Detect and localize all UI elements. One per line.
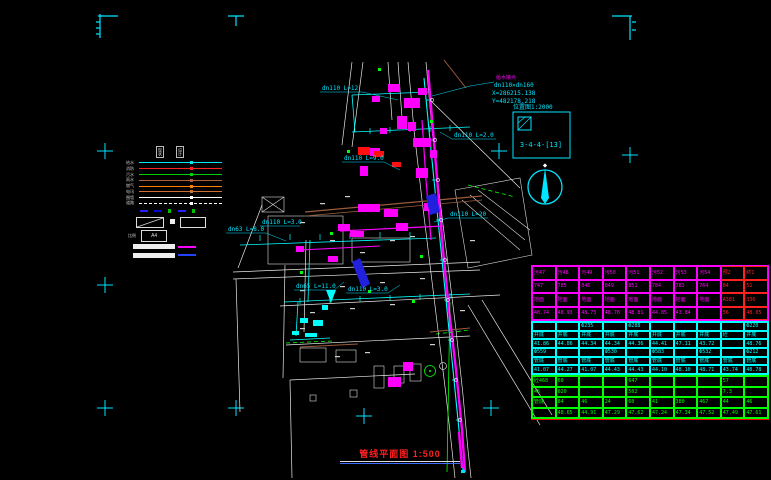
table-cell: 44.91	[579, 408, 603, 419]
legend-scalebar-1	[133, 244, 175, 249]
table-section: Ф235Ф288Ф220井底井底井底井底井底井底井底井底砼井底41.8644.0…	[531, 321, 769, 375]
table-cell: Ф235	[579, 322, 603, 331]
table-cell: 47.49	[721, 408, 745, 419]
table-cell: 46	[579, 397, 603, 408]
legend-symbols-row	[140, 208, 220, 214]
table-cell: 44.27	[556, 365, 580, 374]
table-cell: 46	[744, 397, 768, 408]
table-cell: 井底	[603, 331, 627, 340]
table-cell	[556, 322, 580, 331]
table-cell: 48.10	[674, 365, 698, 374]
table-cell	[697, 387, 721, 398]
table-cell: 井底	[626, 331, 650, 340]
table-cell: 地面	[556, 293, 580, 307]
legend-magenta-sample	[178, 246, 196, 248]
table-cell: 41.07	[579, 365, 603, 374]
legend-row-marker	[190, 179, 193, 182]
title-underline-blue	[340, 463, 460, 464]
connection-note-line4: Y=482178.218	[492, 98, 536, 105]
table-cell: 020	[556, 387, 580, 398]
legend-slope-symbol	[136, 217, 164, 228]
table-cell	[603, 387, 627, 398]
table-cell: 管底	[556, 357, 580, 366]
legend-open-rect-symbol	[180, 217, 206, 228]
table-cell: 44.34	[579, 339, 603, 348]
legend-row-line	[139, 162, 222, 163]
legend-symbol-tick-green	[168, 209, 171, 213]
connection-note-line3: X=286215.138	[492, 90, 536, 97]
pipe-label: dn110 L=12	[322, 85, 359, 92]
table-cell: 41	[650, 397, 674, 408]
table-cell: Ф583	[650, 348, 674, 357]
table-cell: 47.62	[626, 408, 650, 419]
legend-row-line	[139, 186, 222, 187]
table-cell: 地面	[697, 293, 721, 307]
table-cell: 784	[650, 280, 674, 294]
legend-scalebar-2	[133, 253, 175, 258]
table-cell	[721, 348, 745, 357]
table-cell: 851	[626, 280, 650, 294]
green-markers	[300, 68, 433, 372]
table-cell: 48.05	[744, 307, 768, 321]
table-cell: 849	[603, 280, 627, 294]
table-cell	[556, 348, 580, 357]
connection-note-line2: dn110×dn160	[494, 82, 534, 89]
table-section: 砼4686064757450205027.3管底8446246041380467…	[531, 375, 769, 419]
table-cell: 48.93	[556, 307, 580, 321]
table-cell: 84	[556, 397, 580, 408]
table-cell: 84	[721, 280, 745, 294]
table-cell: 647	[626, 376, 650, 387]
legend-row-line	[139, 197, 222, 198]
table-cell: 47.11	[674, 339, 698, 348]
table-cell: 污53	[674, 266, 698, 280]
table-cell: 48.71	[697, 365, 721, 374]
table-cell: 污49	[579, 266, 603, 280]
table-cell	[697, 376, 721, 387]
table-cell: 764	[697, 280, 721, 294]
legend-row-line	[139, 174, 222, 175]
table-cell: 污48	[556, 266, 580, 280]
table-cell: 783	[674, 280, 698, 294]
legend-row-marker	[190, 202, 193, 205]
legend-row-line	[139, 180, 222, 181]
table-cell: 管底	[532, 357, 556, 366]
table-cell	[744, 376, 768, 387]
table-cell: 管底	[579, 357, 603, 366]
title-underline-white	[340, 461, 460, 462]
table-cell: 管底	[626, 357, 650, 366]
sheet-title: 管线平面图 1:500	[340, 447, 460, 464]
table-cell	[579, 348, 603, 357]
table-cell: 44.10	[650, 365, 674, 374]
legend-square-symbol	[170, 219, 175, 224]
legend-row-marker	[190, 196, 193, 199]
table-cell: 砼	[721, 331, 745, 340]
detail-box-label: 3-4-4-[13]	[520, 141, 562, 149]
table-cell: 预2	[721, 266, 745, 280]
frame-corner-marks	[96, 14, 636, 40]
table-cell: 污54	[697, 266, 721, 280]
table-cell: 43.72	[697, 339, 721, 348]
legend-col-design: 设计	[176, 146, 184, 158]
legend-symbol-dash-blue	[140, 210, 148, 212]
table-cell: Ф559	[532, 348, 556, 357]
table-cell: 43.74	[721, 365, 745, 374]
table-cell: 地面	[674, 293, 698, 307]
pipe-label: dn63 L=8.0	[228, 226, 265, 233]
table-cell: Ф288	[626, 322, 650, 331]
table-cell: Ф220	[744, 322, 768, 331]
connection-note: 给水接点 dn110×dn160 X=286215.138 Y=482178.2…	[432, 74, 536, 105]
road-edges	[233, 62, 552, 478]
table-cell: 污52	[650, 266, 674, 280]
legend-row: 道路	[126, 201, 222, 207]
table-cell: 47.61	[744, 408, 768, 419]
legend-slope-row	[136, 217, 206, 228]
table-cell: 井底	[556, 331, 580, 340]
legend-symbol-tick-green2	[192, 209, 195, 213]
table-cell: 44.41	[650, 339, 674, 348]
pipe-label: dn110 L=2.0	[454, 132, 494, 139]
legend-scale-label: 比例	[128, 233, 136, 238]
table-cell	[721, 339, 745, 348]
table-cell: 管底	[603, 357, 627, 366]
table-cell: 57	[721, 376, 745, 387]
table-cell: 地面	[603, 293, 627, 307]
table-cell	[603, 322, 627, 331]
table-cell: 44	[721, 397, 745, 408]
legend-scale-row: 比例 A4	[128, 230, 167, 242]
table-cell: 管底	[532, 397, 556, 408]
table-cell: 48.76	[603, 307, 627, 321]
table-cell: 井底	[579, 331, 603, 340]
table-cell: 井底	[744, 331, 768, 340]
table-cell: 43.84	[674, 307, 698, 321]
legend: 现状 设计 给水消防污水雨水燃气电讯围墙道路 比例 A4	[126, 146, 222, 264]
table-cell: 地面	[579, 293, 603, 307]
table-cell: 56	[721, 307, 745, 321]
legend-row-label: 道路	[126, 200, 139, 206]
table-cell: 地面	[626, 293, 650, 307]
table-cell: Ф530	[603, 348, 627, 357]
table-cell: 48.65	[556, 408, 580, 419]
table-cell: 47.24	[650, 408, 674, 419]
legend-row-line	[139, 191, 222, 192]
table-cell: 44.85	[650, 307, 674, 321]
table-cell: 44.06	[556, 339, 580, 348]
table-cell	[579, 387, 603, 398]
pipe-label: dn65 L=11.0	[296, 283, 336, 290]
table-cell	[674, 376, 698, 387]
table-cell: 管底	[650, 357, 674, 366]
table-cell: 785	[556, 280, 580, 294]
cad-viewport[interactable]: 位置图1:2000 3-4-4-[13] 给水接点 dn110×dn160 X=…	[0, 0, 771, 480]
table-cell: 44.43	[603, 365, 627, 374]
table-cell: 380	[674, 397, 698, 408]
table-cell	[650, 376, 674, 387]
legend-symbol-dash-navy	[154, 210, 162, 212]
table-cell: 终1	[744, 266, 768, 280]
table-cell	[674, 322, 698, 331]
legend-row-line	[139, 203, 222, 204]
table-cell	[674, 387, 698, 398]
pipe-label: dn110 L=9.0	[344, 155, 384, 162]
table-cell: 44.36	[626, 339, 650, 348]
pipe-label: dn110 L=3.0	[262, 219, 302, 226]
legend-symbol-dash-blue2	[178, 210, 186, 212]
table-cell: 管底	[697, 357, 721, 366]
table-cell	[650, 387, 674, 398]
table-cell	[532, 408, 556, 419]
legend-column-headers: 现状 设计	[156, 146, 184, 158]
table-cell: 47.34	[674, 408, 698, 419]
table-cell: 846	[579, 280, 603, 294]
north-arrow	[528, 163, 562, 204]
water-pipes	[240, 78, 470, 470]
table-cell: 747	[532, 280, 556, 294]
table-cell: 44.43	[626, 365, 650, 374]
table-cell: 48.81	[626, 307, 650, 321]
legend-row-marker	[190, 190, 193, 193]
table-cell: 41.86	[532, 339, 556, 348]
table-cell: A381	[721, 293, 745, 307]
legend-row-marker	[190, 161, 193, 164]
table-cell: Ф532	[697, 348, 721, 357]
table-cell: 井底	[532, 331, 556, 340]
table-cell	[532, 322, 556, 331]
table-cell: 336	[744, 293, 768, 307]
table-cell: 井底	[650, 331, 674, 340]
table-cell: 48.73	[579, 307, 603, 321]
table-cell	[744, 387, 768, 398]
pipe-label: dn110 L=3.0	[348, 286, 388, 293]
detail-index-box	[513, 112, 570, 158]
legend-col-existing: 现状	[156, 146, 164, 158]
table-cell	[603, 376, 627, 387]
table-cell: 502	[626, 387, 650, 398]
table-cell: 45	[532, 387, 556, 398]
legend-row-marker	[190, 185, 193, 188]
table-cell	[721, 322, 745, 331]
table-cell: 48.74	[532, 307, 556, 321]
table-cell: 44.34	[603, 339, 627, 348]
table-cell: 管底	[744, 357, 768, 366]
table-cell: 48.76	[744, 339, 768, 348]
table-cell: 467	[697, 397, 721, 408]
table-cell: 砼468	[532, 376, 556, 387]
table-cell: 井底	[674, 331, 698, 340]
table-cell: 地面	[532, 293, 556, 307]
table-cell: 污47	[532, 266, 556, 280]
table-cell	[650, 322, 674, 331]
pipe-label: dn110 L=20	[450, 211, 487, 218]
table-cell	[674, 348, 698, 357]
table-cell	[579, 376, 603, 387]
table-cell	[697, 322, 721, 331]
sheet-title-text: 管线平面图 1:500	[359, 449, 441, 459]
table-cell: 47.29	[603, 408, 627, 419]
table-cell: Ф212	[744, 348, 768, 357]
table-cell	[697, 307, 721, 321]
table-cell: 60	[626, 397, 650, 408]
legend-blue-sample	[178, 254, 196, 256]
table-cell: 41.07	[532, 365, 556, 374]
legend-row-marker	[190, 173, 193, 176]
table-section: 污47污48污49污50污51污52污53污54预2终1747785846849…	[531, 265, 769, 321]
pipe-end-mark	[461, 470, 465, 473]
table-cell: 井底	[697, 331, 721, 340]
table-cell: 47.52	[697, 408, 721, 419]
table-cell: 48.78	[744, 365, 768, 374]
table-cell	[626, 348, 650, 357]
well-table: 污47污48污49污50污51污52污53污54预2终1747785846849…	[531, 265, 769, 420]
legend-row-marker	[190, 167, 193, 170]
table-cell: 60	[556, 376, 580, 387]
water-pipe-nodes	[292, 290, 336, 337]
legend-scale-box: A4	[141, 230, 167, 242]
table-cell: 51	[744, 280, 768, 294]
table-cell: 管底	[721, 357, 745, 366]
table-cell: 地面	[650, 293, 674, 307]
table-cell: 污51	[626, 266, 650, 280]
legend-row-line	[139, 168, 222, 169]
table-cell: 24	[603, 397, 627, 408]
table-cell: 管底	[674, 357, 698, 366]
table-cell: 7.3	[721, 387, 745, 398]
connection-note-line1: 给水接点	[496, 74, 516, 81]
legend-lines: 给水消防污水雨水燃气电讯围墙道路	[126, 160, 222, 206]
table-cell: 污50	[603, 266, 627, 280]
